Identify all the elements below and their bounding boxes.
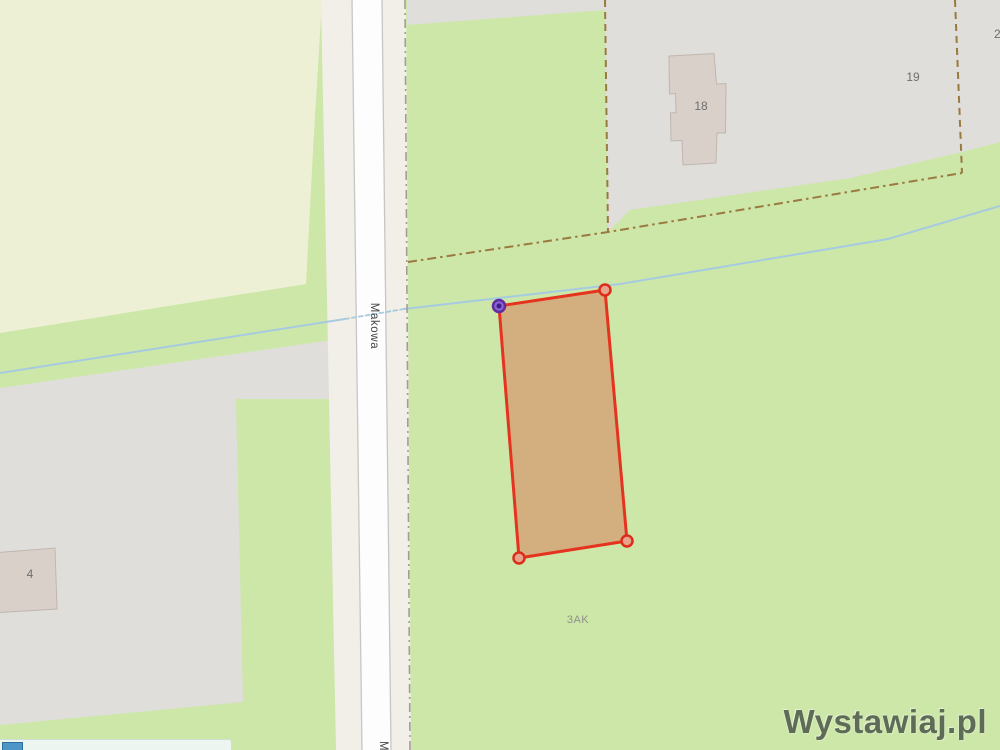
red-vertex-handle-icon[interactable] xyxy=(622,536,633,547)
housenumber-18: 18 xyxy=(694,99,708,113)
farmland-area xyxy=(0,0,322,333)
red-vertex-handle-icon[interactable] xyxy=(600,285,611,296)
map-canvas[interactable]: Makowa Makowa 18 19 2 4 3AK Wystawiaj.pl xyxy=(0,0,1000,750)
watermark-wystawiaj: Wystawiaj.pl xyxy=(784,703,987,741)
street-label-makowa: Makowa xyxy=(368,303,380,349)
housenumber-4: 4 xyxy=(27,567,34,581)
housenumber-19: 19 xyxy=(906,70,920,84)
housenumber-partial-right-edge: 2 xyxy=(994,27,1000,41)
purple-vertex-core xyxy=(497,304,502,309)
street-label-makowa-partial: Makowa xyxy=(377,741,389,750)
map-svg: Makowa Makowa 18 19 2 4 3AK xyxy=(0,0,1000,750)
red-vertex-handle-icon[interactable] xyxy=(514,553,525,564)
partial-blue-button[interactable] xyxy=(2,742,23,750)
partial-bottom-panel xyxy=(0,739,232,750)
parcel-polygon[interactable] xyxy=(499,290,627,558)
area-label-3ak: 3AK xyxy=(567,614,589,626)
